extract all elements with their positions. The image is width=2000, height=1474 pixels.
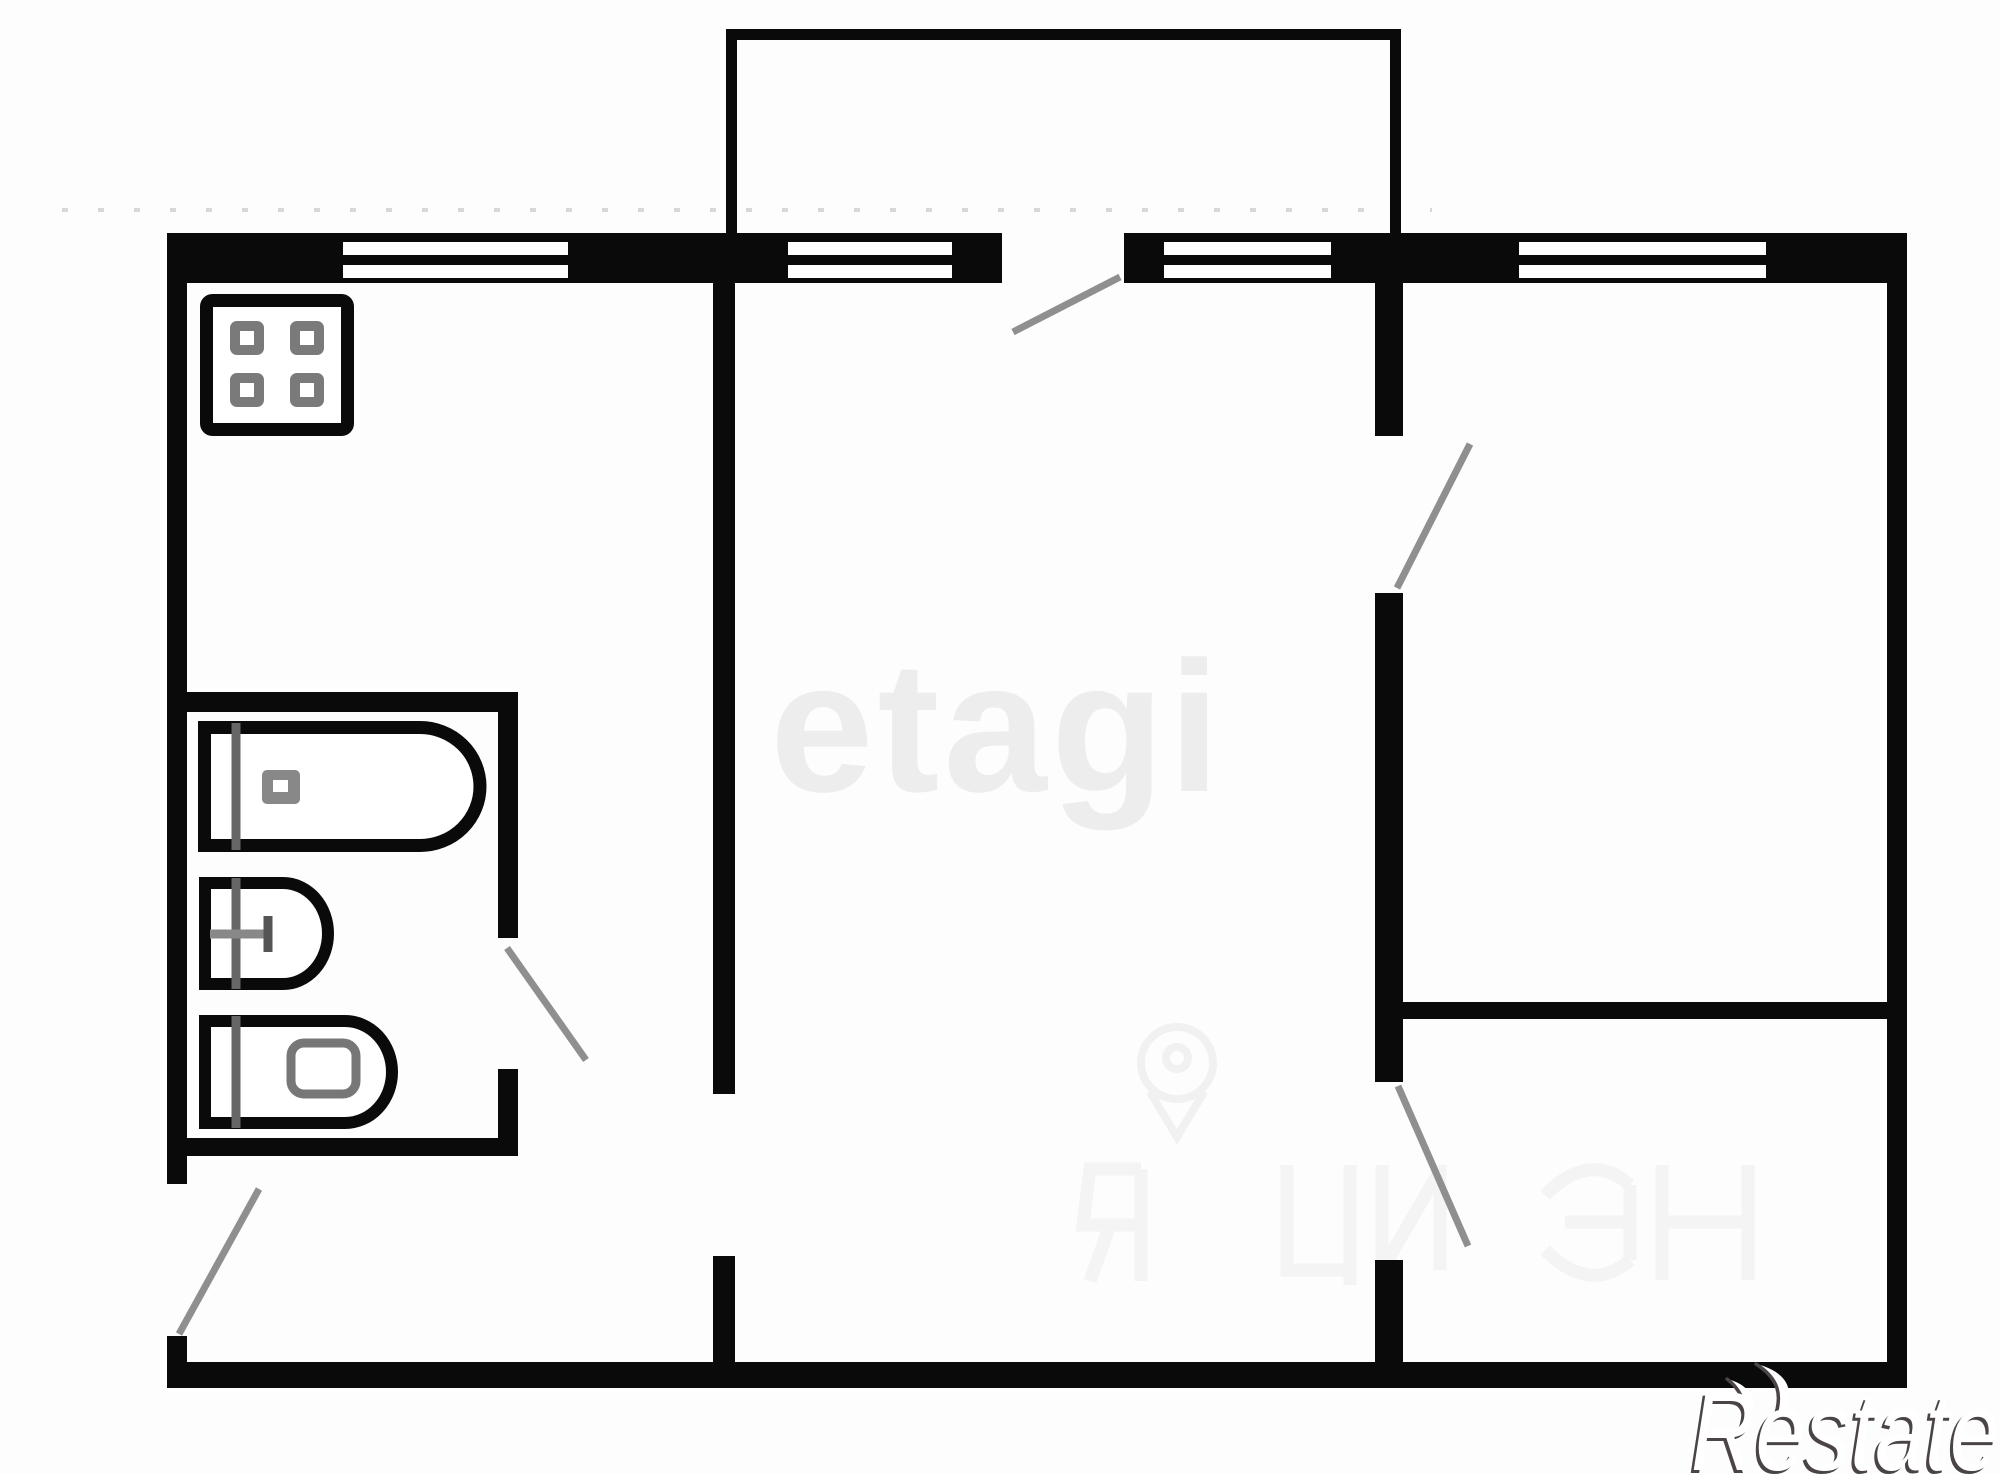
svg-text:Restate: Restate xyxy=(1691,1369,2000,1474)
svg-text:etagi: etagi xyxy=(770,624,1224,831)
